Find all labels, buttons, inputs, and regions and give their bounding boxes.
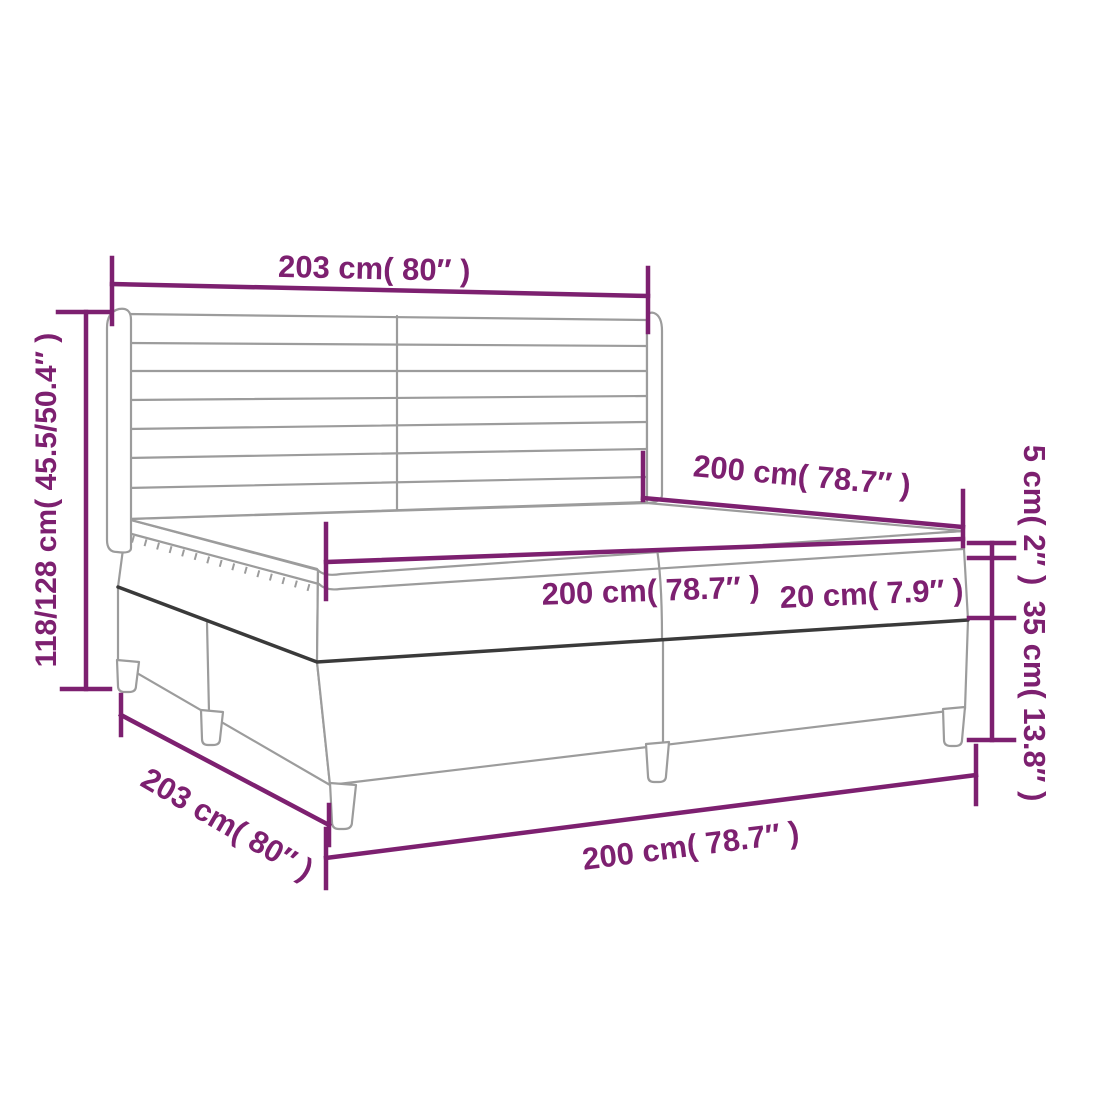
bed-drawing: [107, 309, 968, 829]
leg-front-right: [943, 707, 965, 746]
bed-dimension-diagram: 203 cm( 80″ ) 118/128 cm( 45.5/50.4″ ) 2…: [0, 0, 1100, 1100]
leg-side-left: [201, 710, 223, 745]
dim-label-base-width: 200 cm( 78.7″ ): [580, 814, 801, 876]
dim-total-height: 118/128 cm( 45.5/50.4″ ): [30, 312, 110, 689]
dim-label-mattress-length: 200 cm( 78.7″ ): [692, 448, 912, 503]
headboard-right-wing: [647, 313, 662, 503]
dim-label-total-height: 118/128 cm( 45.5/50.4″ ): [30, 333, 63, 668]
dim-label-frame-length: 203 cm( 80″ ): [135, 761, 319, 887]
headboard-left-wing: [107, 309, 131, 553]
dim-label-topper-height: 5 cm( 2″ ): [1017, 445, 1052, 586]
leg-front-corner: [330, 783, 356, 829]
dim-label-base-height: 35 cm( 13.8″ ): [1017, 601, 1052, 802]
dim-label-headboard-width: 203 cm( 80″ ): [278, 249, 471, 288]
diagram-canvas: 203 cm( 80″ ) 118/128 cm( 45.5/50.4″ ) 2…: [0, 0, 1100, 1100]
dim-right-heights: 5 cm( 2″ ) 35 cm( 13.8″ ): [969, 445, 1052, 802]
leg-front-middle: [646, 742, 669, 782]
leg-head-left: [117, 660, 139, 692]
